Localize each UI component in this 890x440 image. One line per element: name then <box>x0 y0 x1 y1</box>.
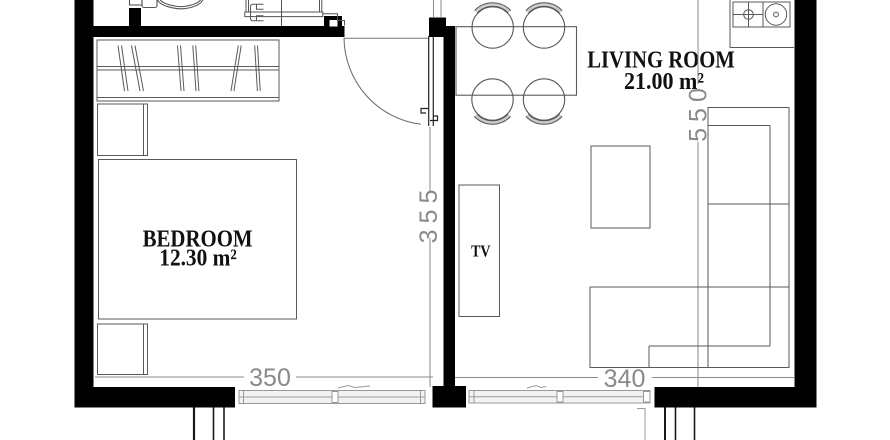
svg-text:355: 355 <box>415 184 443 244</box>
svg-text:TV: TV <box>471 242 490 260</box>
svg-text:12.30 m²: 12.30 m² <box>159 244 237 270</box>
svg-text:340: 340 <box>604 365 646 393</box>
svg-text:350: 350 <box>249 364 291 392</box>
